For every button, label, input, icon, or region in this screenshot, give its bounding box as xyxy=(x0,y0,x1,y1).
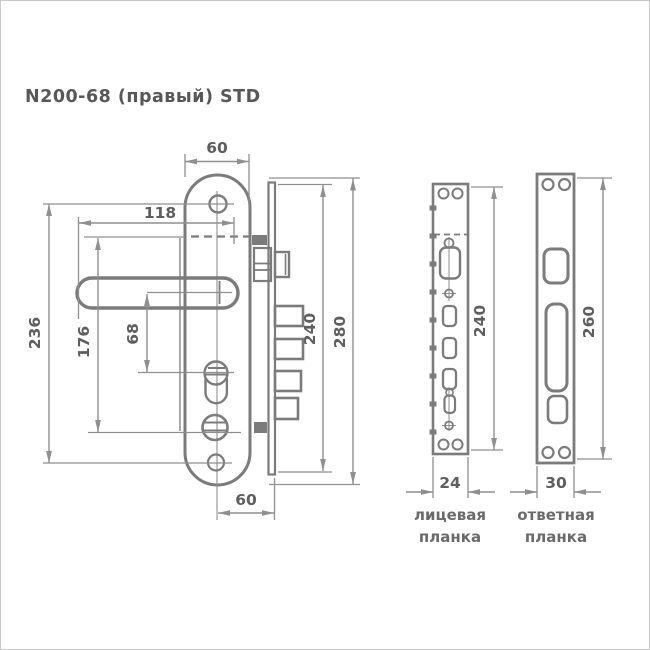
side-view-lock-body xyxy=(252,183,303,475)
front-view-dimensions: 60 118 236 176 68 240 280 60 xyxy=(26,139,360,520)
strike-screw-hole-tl xyxy=(543,179,554,190)
technical-drawing: N200-68 (правый) STD xyxy=(1,1,650,650)
dim-screw-distance: 236 xyxy=(26,317,44,349)
face-screw-hole-tr xyxy=(453,189,463,199)
dim-backset-bottom: 60 xyxy=(235,491,257,509)
strike-plate-dimensions: 260 30 ответная планка xyxy=(510,178,612,546)
dim-handle-to-cylinder: 68 xyxy=(124,323,142,345)
strike-plate-view xyxy=(537,174,574,463)
dim-plate-total-height: 280 xyxy=(331,316,349,349)
face-bolt-hole-1 xyxy=(443,306,456,326)
deadbolt-pin-2 xyxy=(275,339,303,359)
strike-small-opening xyxy=(548,396,567,423)
dim-handle-to-turn: 176 xyxy=(75,326,93,358)
dim-strike-height: 260 xyxy=(580,306,598,339)
latch-bolt xyxy=(275,252,289,277)
faceplate-side-view xyxy=(269,183,276,475)
face-screw-hole-bl xyxy=(439,440,449,450)
face-bolt-hole-3 xyxy=(443,369,456,389)
strike-latch-opening xyxy=(544,249,568,283)
strike-screw-hole-bl xyxy=(543,447,554,458)
face-screw-hole-tl xyxy=(439,189,449,199)
bottom-fixing-tab xyxy=(254,422,267,433)
strike-plate-label-line2: планка xyxy=(525,528,587,546)
dim-face-height: 240 xyxy=(471,305,489,338)
face-bolt-hole-2 xyxy=(443,338,456,358)
strike-screw-hole-br xyxy=(559,447,570,458)
deadbolt-pin-1 xyxy=(275,306,303,326)
thumb-turn-knob xyxy=(203,415,228,440)
latch-cutout xyxy=(440,248,460,279)
strike-screw-hole-tr xyxy=(559,179,570,190)
face-plate-view xyxy=(430,184,469,454)
top-fixing-tab xyxy=(252,235,267,245)
dim-handle-length: 118 xyxy=(144,204,176,222)
drawing-canvas: N200-68 (правый) STD xyxy=(0,0,650,650)
face-bolt-hole-4 xyxy=(445,396,456,414)
drawing-title: N200-68 (правый) STD xyxy=(25,87,261,107)
face-plate-dimensions: 240 24 лицевая планка xyxy=(406,187,503,546)
strike-plate-label-line1: ответная xyxy=(517,506,594,524)
thumb-turn-slot xyxy=(203,423,227,431)
front-view-handle-plate xyxy=(77,175,255,520)
deadbolt-pin-3 xyxy=(275,371,301,391)
strike-deadbolt-opening xyxy=(546,304,567,391)
dim-strike-width: 30 xyxy=(545,474,567,492)
face-plate-label-line2: планка xyxy=(419,528,481,546)
deadbolt-pin-4 xyxy=(275,398,298,419)
dim-face-width: 24 xyxy=(439,474,461,492)
dim-top-width: 60 xyxy=(206,139,228,157)
face-screw-hole-br xyxy=(453,440,463,450)
dim-lock-body-height: 240 xyxy=(301,313,319,346)
face-plate-label-line1: лицевая xyxy=(414,506,486,524)
